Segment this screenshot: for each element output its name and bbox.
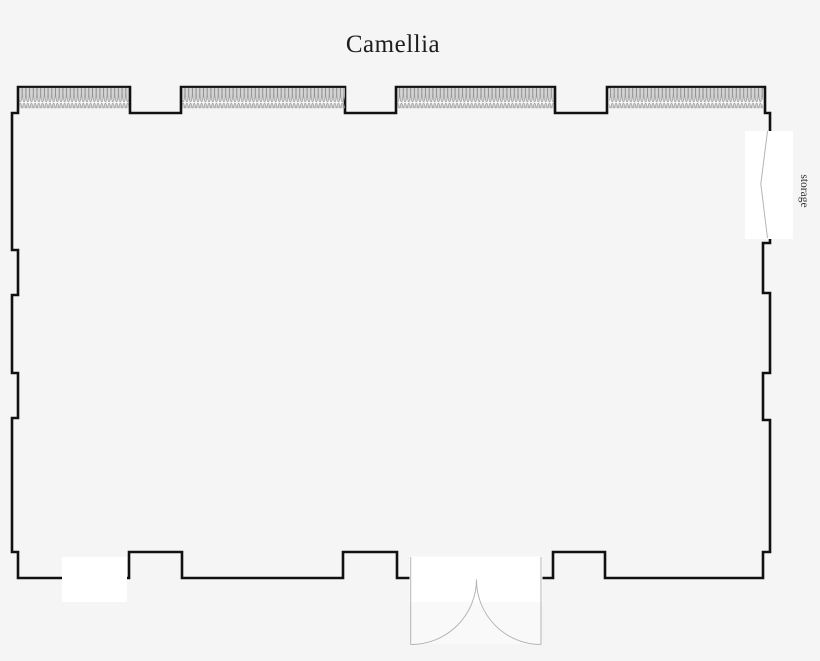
operable-wall-section-3 <box>398 88 554 108</box>
floorplan-drawing <box>0 0 820 661</box>
operable-wall-section-2 <box>183 88 346 108</box>
operable-wall-section-1 <box>20 88 129 108</box>
room-wall-outline <box>12 87 770 578</box>
floorplan-canvas: Camellia storage <box>0 0 820 661</box>
bottom-left-door-opening <box>62 557 127 602</box>
main-door-vestibule-area <box>412 602 541 644</box>
operable-wall-section-4 <box>610 88 764 108</box>
storage-door-opening <box>745 131 793 239</box>
storage-label: storage <box>797 169 811 213</box>
